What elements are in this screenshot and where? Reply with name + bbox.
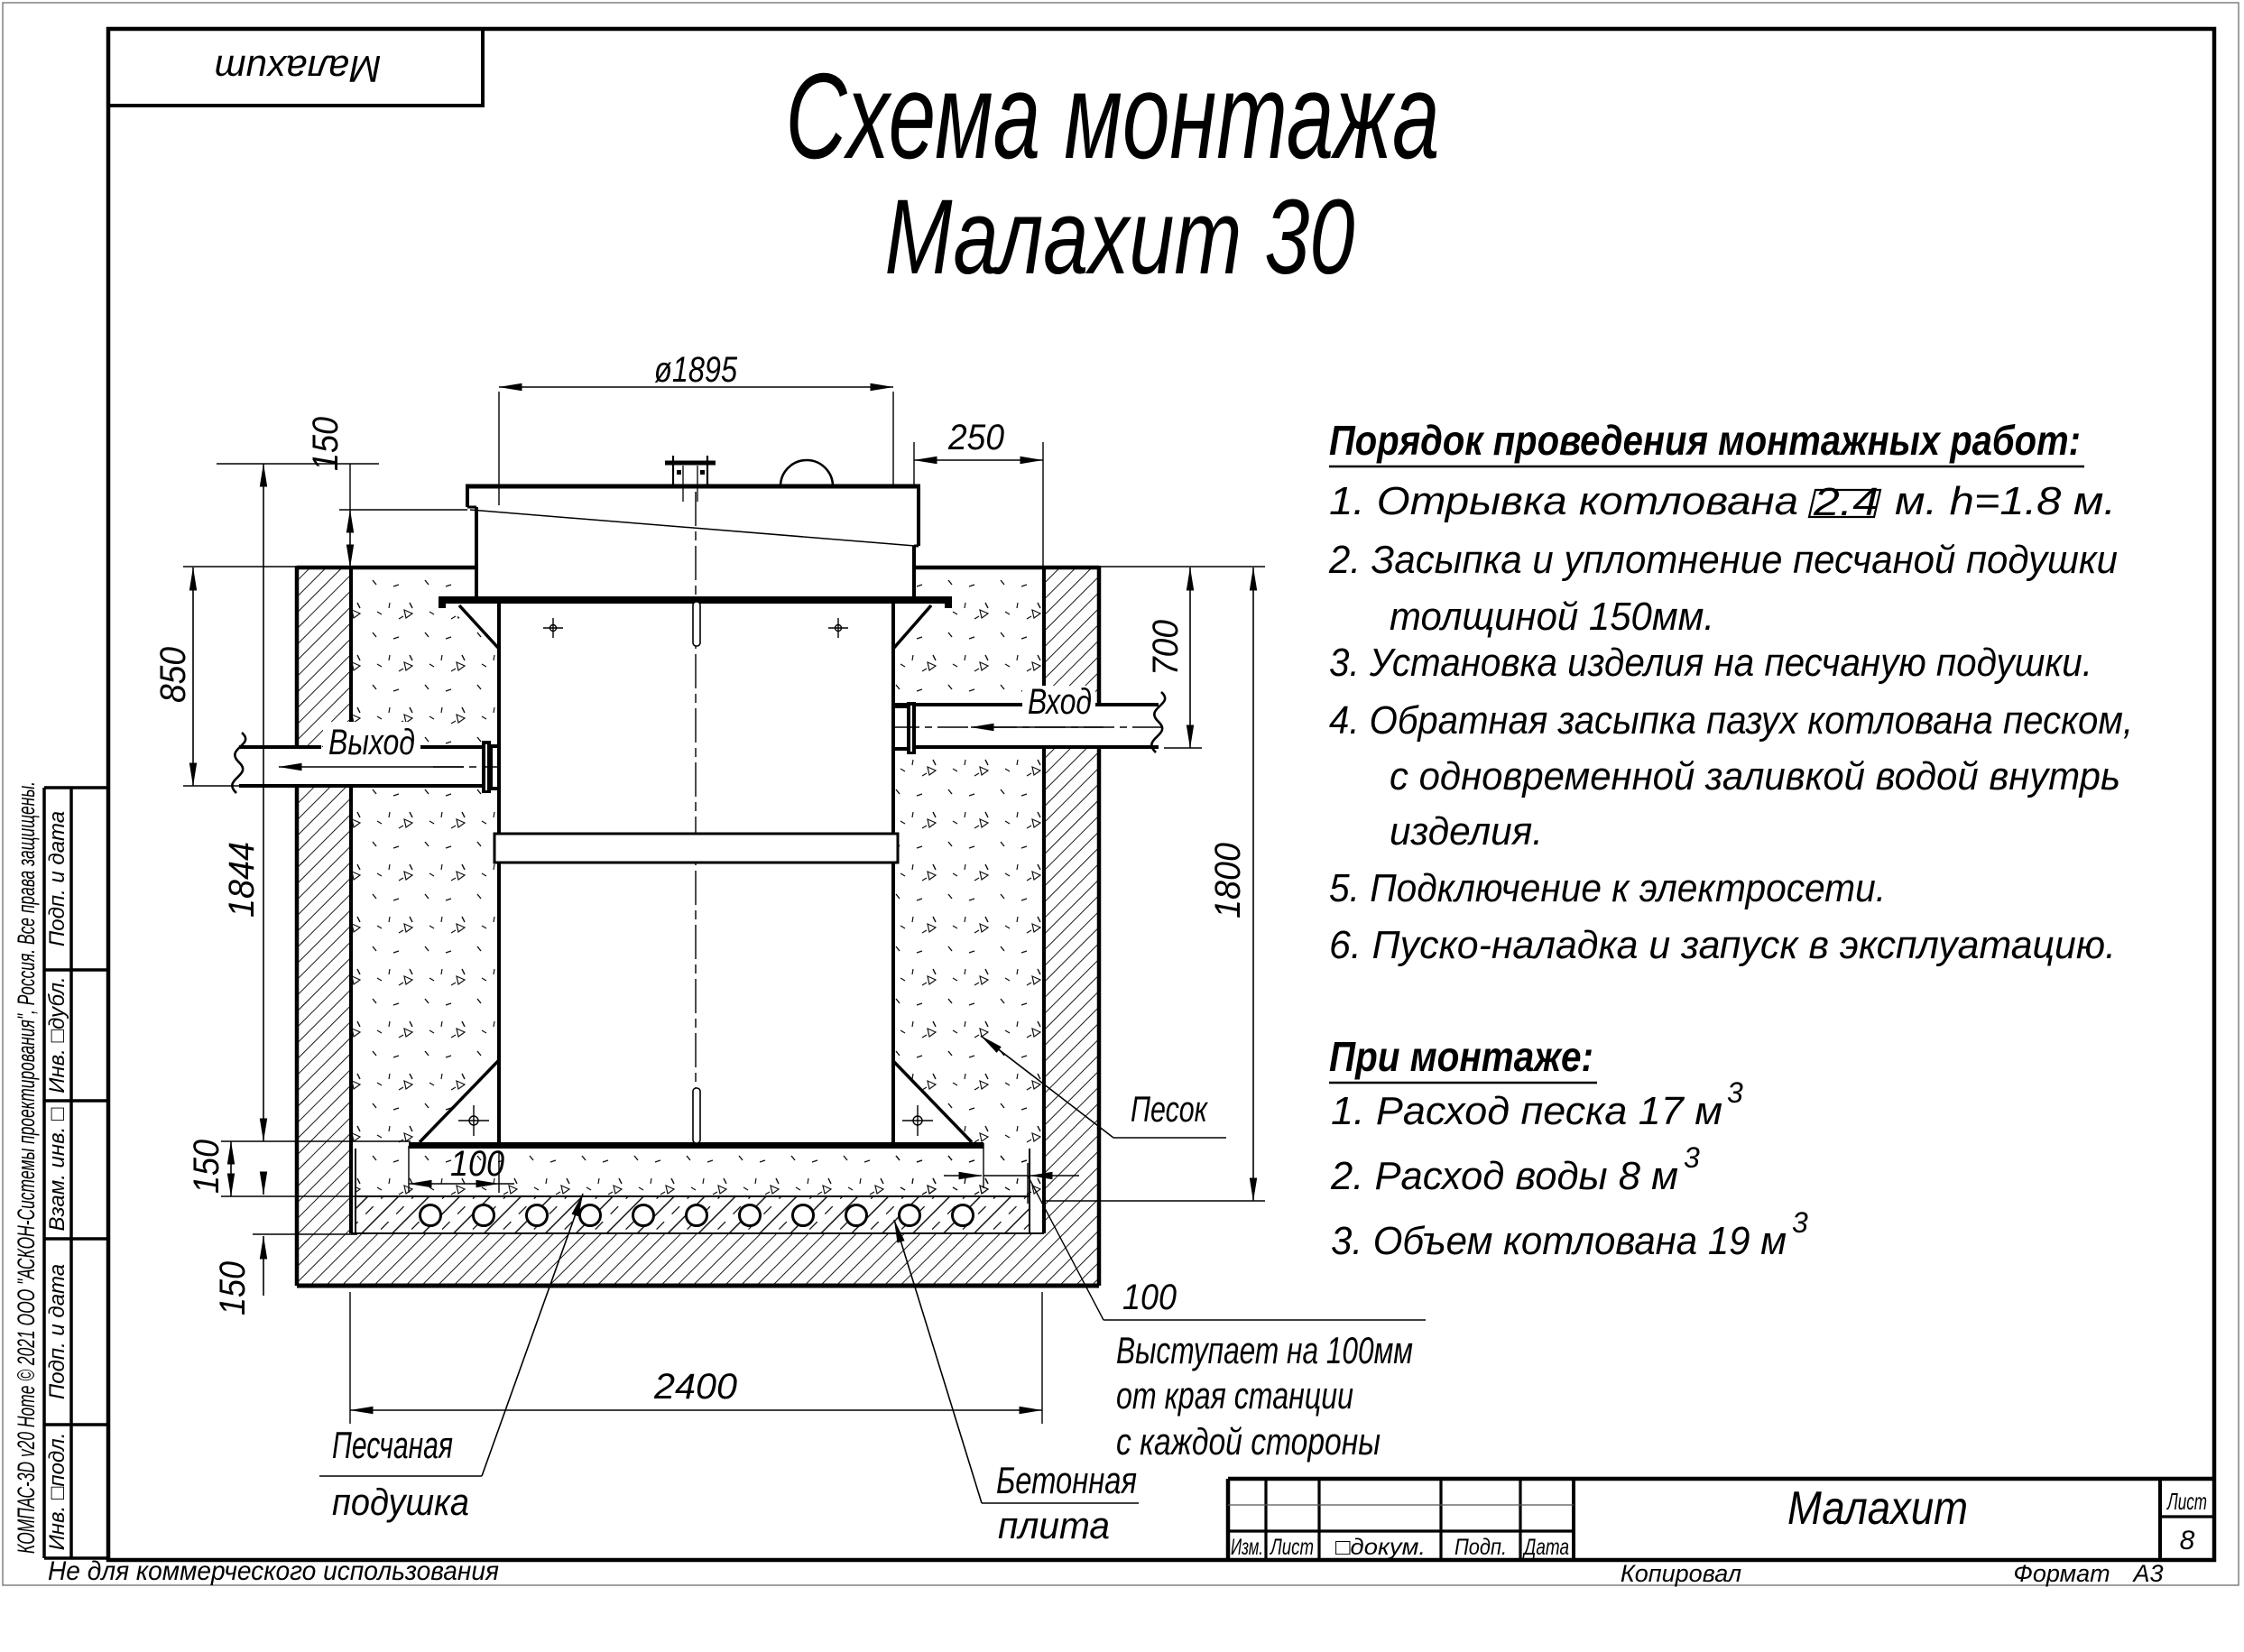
svg-text:м. h=1.8 м.: м. h=1.8 м.	[1895, 479, 2116, 523]
svg-text:Выступает на 100мм: Выступает на 100мм	[1116, 1329, 1413, 1371]
svg-text:Песок: Песок	[1131, 1090, 1209, 1130]
svg-text:2. Засыпка и уплотнение песчан: 2. Засыпка и уплотнение песчаной подушки	[1328, 538, 2118, 582]
svg-text:2400: 2400	[653, 1367, 737, 1407]
svg-text:3. Объем котлована 19 м: 3. Объем котлована 19 м	[1331, 1219, 1787, 1263]
svg-text:Лист: Лист	[2166, 1488, 2207, 1515]
svg-text:3: 3	[1684, 1141, 1700, 1174]
svg-text:5. Подключение к электросети.: 5. Подключение к электросети.	[1329, 866, 1886, 910]
svg-text:с одновременной заливкой водой: с одновременной заливкой водой внутрь	[1390, 754, 2120, 798]
svg-text:2. Расход воды 8 м: 2. Расход воды 8 м	[1330, 1154, 1678, 1198]
svg-text:□докум.: □докум.	[1335, 1535, 1426, 1560]
svg-text:150: 150	[187, 1140, 226, 1194]
svg-text:100: 100	[450, 1144, 504, 1184]
svg-text:1844: 1844	[222, 842, 262, 918]
svg-text:Формат: Формат	[2013, 1560, 2110, 1587]
svg-text:от края станции: от края станции	[1116, 1374, 1353, 1417]
svg-text:Копировал: Копировал	[1621, 1560, 1741, 1587]
svg-text:1. Отрывка котлована: 1. Отрывка котлована	[1329, 479, 1798, 523]
svg-text:6. Пуско-наладка и запуск в эк: 6. Пуско-наладка и запуск в эксплуатацию…	[1329, 923, 2116, 967]
svg-text:Не для коммерческого использов: Не для коммерческого использования	[48, 1556, 499, 1586]
svg-text:КОМПАС-3D v20 Home © 2021 ООО: КОМПАС-3D v20 Home © 2021 ООО "АСКОН-Сис…	[13, 781, 40, 1554]
svg-text:Инв. □дубл.: Инв. □дубл.	[45, 976, 69, 1093]
svg-text:8: 8	[2180, 1526, 2195, 1555]
svg-text:3: 3	[1727, 1076, 1743, 1109]
svg-text:При монтаже:: При монтаже:	[1329, 1033, 1593, 1080]
svg-text:толщиной 150мм.: толщиной 150мм.	[1390, 595, 1714, 639]
svg-text:3: 3	[1792, 1206, 1808, 1239]
svg-text:Взам. инв. □: Взам. инв. □	[45, 1107, 69, 1231]
svg-text:700: 700	[1146, 620, 1186, 676]
svg-text:Изм.: Изм.	[1231, 1535, 1263, 1560]
svg-text:Бетонная: Бетонная	[996, 1459, 1137, 1501]
svg-text:Дата: Дата	[1522, 1535, 1569, 1560]
svg-text:1800: 1800	[1208, 843, 1248, 918]
svg-text:Порядок проведения монтажных р: Порядок проведения монтажных работ:	[1329, 417, 2081, 464]
svg-text:Инв. □подл.: Инв. □подл.	[45, 1433, 69, 1551]
svg-text:Вход: Вход	[1028, 682, 1092, 722]
svg-text:150: 150	[213, 1261, 253, 1315]
svg-text:плита: плита	[998, 1504, 1110, 1546]
svg-text:3. Установка изделия на песчан: 3. Установка изделия на песчаную подушки…	[1329, 641, 2092, 685]
svg-text:100: 100	[1122, 1278, 1177, 1317]
svg-text:Малахит: Малахит	[1787, 1482, 1968, 1535]
svg-text:2.4: 2.4	[1813, 480, 1879, 524]
svg-text:ø1895: ø1895	[654, 350, 738, 390]
svg-text:150: 150	[306, 417, 346, 471]
svg-text:А3: А3	[2131, 1560, 2163, 1587]
svg-text:Лист: Лист	[1270, 1535, 1314, 1560]
svg-text:4. Обратная засыпка пазух котл: 4. Обратная засыпка пазух котлована песк…	[1329, 698, 2133, 743]
svg-text:250: 250	[947, 418, 1004, 457]
svg-text:Малахит: Малахит	[215, 48, 382, 90]
svg-text:с каждой стороны: с каждой стороны	[1116, 1420, 1381, 1463]
svg-text:Песчаная: Песчаная	[332, 1424, 453, 1466]
svg-text:Подп. и дата: Подп. и дата	[45, 1264, 69, 1399]
svg-text:Выход: Выход	[328, 723, 415, 762]
svg-text:Подп.: Подп.	[1454, 1535, 1507, 1560]
svg-text:850: 850	[153, 647, 193, 703]
svg-text:Подп. и дата: Подп. и дата	[45, 811, 69, 946]
svg-text:Малахит 30: Малахит 30	[885, 178, 1355, 297]
svg-text:Схема монтажа: Схема монтажа	[786, 48, 1440, 184]
svg-text:изделия.: изделия.	[1390, 809, 1543, 854]
svg-text:подушка: подушка	[332, 1481, 469, 1523]
svg-text:1. Расход песка 17 м: 1. Расход песка 17 м	[1331, 1089, 1722, 1133]
